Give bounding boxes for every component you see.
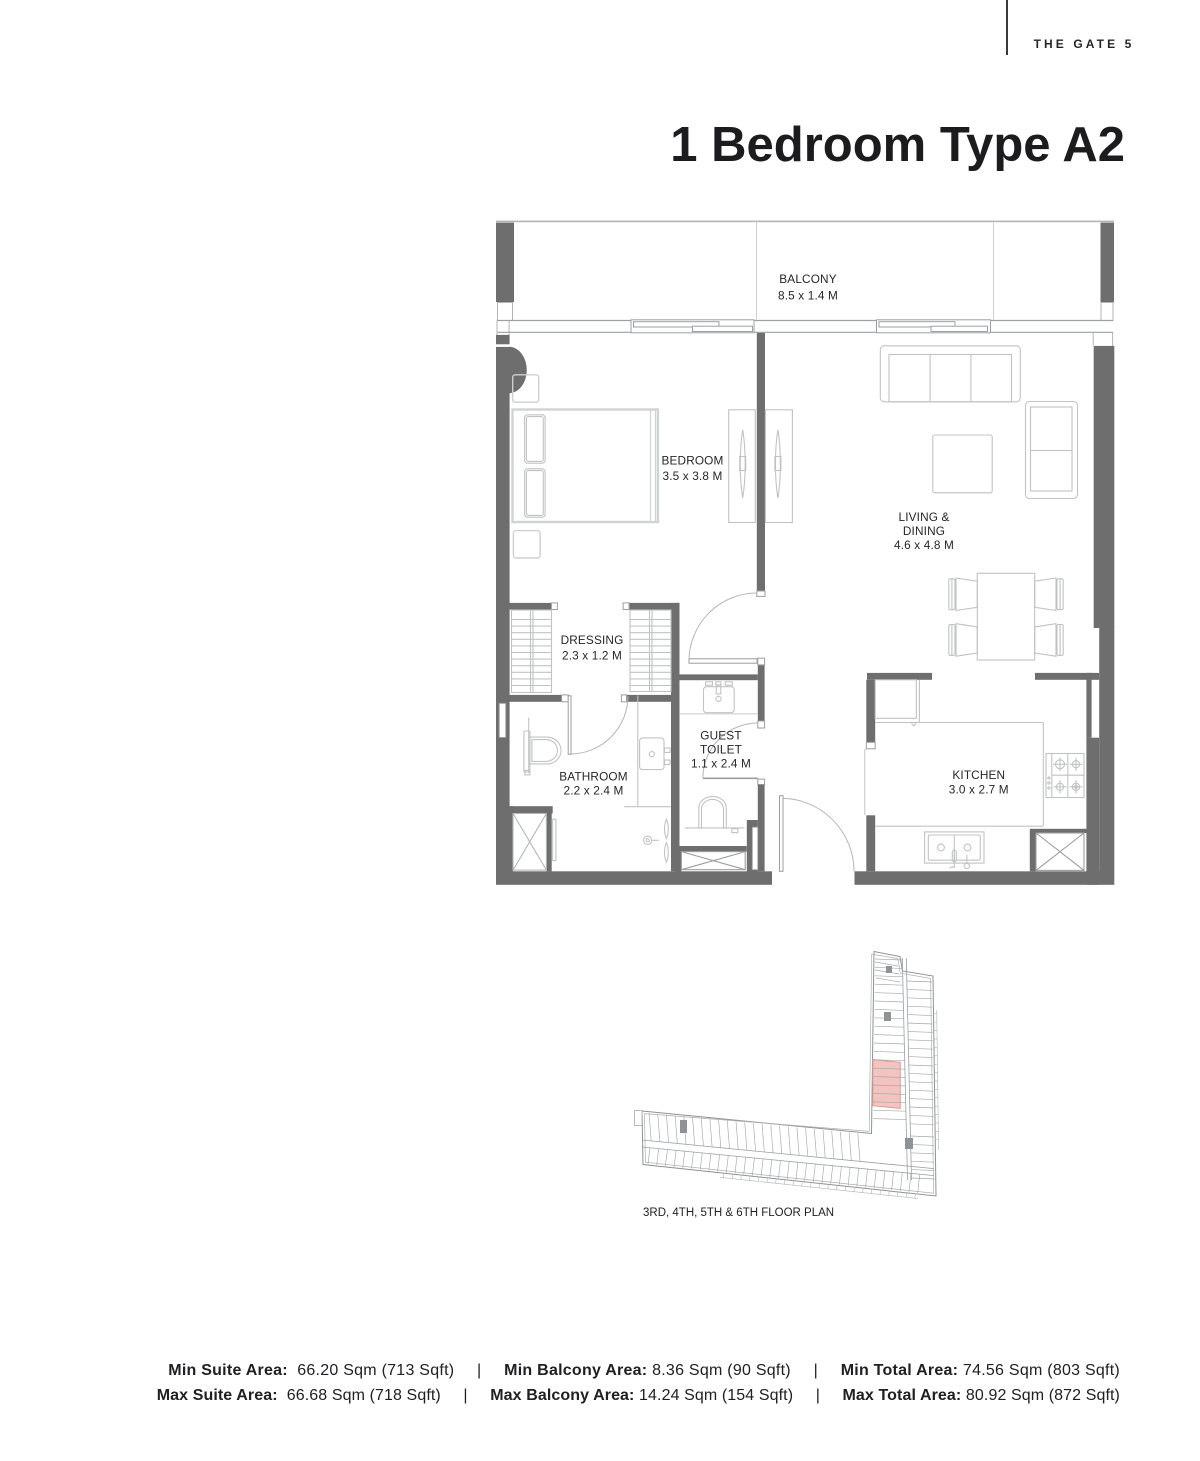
svg-text:GUEST: GUEST [700, 729, 741, 743]
svg-text:BALCONY: BALCONY [779, 272, 836, 286]
svg-text:2.2 x 2.4 M: 2.2 x 2.4 M [563, 784, 623, 798]
svg-text:BATHROOM: BATHROOM [559, 770, 628, 784]
svg-text:BEDROOM: BEDROOM [661, 454, 723, 468]
svg-text:DRESSING: DRESSING [561, 633, 624, 647]
svg-text:4.6 x 4.8 M: 4.6 x 4.8 M [894, 538, 954, 552]
svg-text:3.0 x 2.7 M: 3.0 x 2.7 M [949, 783, 1009, 797]
svg-text:TOILET: TOILET [700, 743, 742, 757]
svg-text:LIVING &: LIVING & [898, 510, 949, 524]
svg-text:3RD, 4TH, 5TH & 6TH FLOOR PLAN: 3RD, 4TH, 5TH & 6TH FLOOR PLAN [643, 1207, 834, 1219]
svg-text:3.5 x 3.8 M: 3.5 x 3.8 M [662, 469, 722, 483]
svg-text:1.1 x 2.4 M: 1.1 x 2.4 M [691, 757, 751, 771]
svg-text:2.3 x 1.2 M: 2.3 x 1.2 M [562, 649, 622, 663]
svg-text:8.5 x 1.4 M: 8.5 x 1.4 M [778, 289, 838, 303]
svg-text:DINING: DINING [903, 524, 945, 538]
svg-text:KITCHEN: KITCHEN [952, 768, 1005, 782]
